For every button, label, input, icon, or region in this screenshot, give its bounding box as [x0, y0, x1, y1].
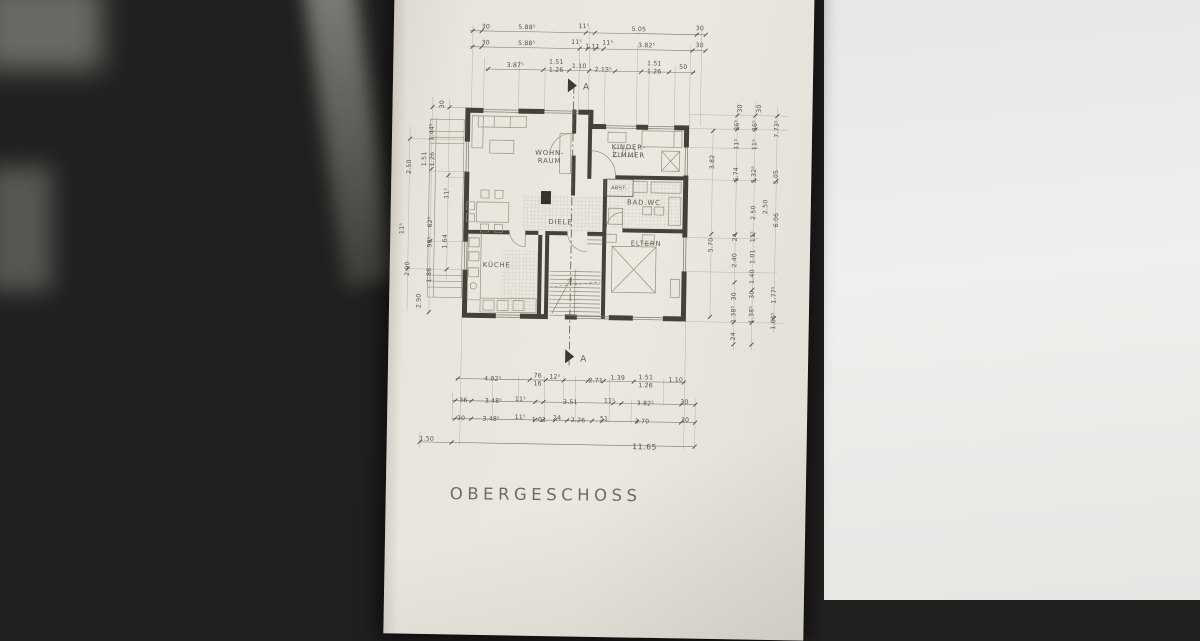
- dimension-label: 11⁵: [515, 396, 526, 403]
- dimension-label: 3.87⁵: [507, 62, 524, 69]
- section-arrow-top: [568, 78, 577, 92]
- dimension-label: 3.70: [635, 418, 650, 425]
- dimension-label: 30: [749, 290, 756, 298]
- dimension-label: 30: [680, 399, 688, 406]
- dimension-label: 1.66⁵: [770, 312, 777, 329]
- dimension-label: 1.39: [610, 375, 625, 382]
- dimension-label: 98⁵: [427, 236, 434, 247]
- dimension-label: 1.86: [426, 268, 433, 283]
- dimension-label: 1.10: [572, 63, 587, 70]
- room-label-wohnraum: WOHN-RAUM: [535, 149, 564, 166]
- dimension-label: 62⁵: [427, 217, 434, 228]
- dimension-label: 5.05: [632, 26, 647, 33]
- dimension-label: 2.71: [588, 377, 603, 384]
- dimension-label: 30: [756, 105, 763, 113]
- dimension-label: 11⁵: [750, 231, 757, 242]
- dimension-label: 1.11: [585, 43, 600, 50]
- dimension-label: 30: [695, 42, 703, 49]
- dimension-label: 1.38⁵: [748, 306, 755, 323]
- dimension-label: 51: [600, 416, 608, 423]
- dimension-label: 11⁵: [602, 40, 613, 47]
- dimension-label: 11⁵: [578, 23, 589, 30]
- section-letter-bottom: A: [580, 355, 587, 365]
- room-label-abstellraum: ABST.: [611, 185, 627, 191]
- dimension-label: 30: [737, 104, 744, 112]
- dimension-label: 30: [457, 415, 465, 422]
- dimension-label: 30: [731, 292, 738, 300]
- dimension-label: 1.40: [749, 269, 756, 284]
- dimension-label: 1.26: [638, 382, 653, 389]
- table-light-patch-left: [0, 166, 52, 291]
- dimension-label: 2.90: [415, 294, 422, 309]
- dimension-label: 24: [553, 415, 561, 422]
- dimension-label: 11⁵: [399, 223, 406, 234]
- dimension-label: 36⁵: [734, 120, 741, 131]
- dimension-label: 1.26: [429, 152, 436, 167]
- dimension-label: 1.77⁵: [771, 286, 778, 303]
- dimension-label: 11⁵: [571, 39, 582, 46]
- dimension-label: 1.26: [647, 68, 662, 75]
- dimension-label: 2.40: [731, 253, 738, 268]
- dimension-label: 3.48⁵: [482, 415, 499, 422]
- dimension-label: 5.88⁵: [518, 24, 535, 31]
- dimension-label: 30: [481, 39, 489, 46]
- dimension-label: 11⁵: [604, 398, 615, 405]
- dimension-label: 11⁵: [515, 414, 526, 421]
- dimension-label: 50: [679, 64, 687, 71]
- dimension-label: 1.01: [749, 249, 756, 264]
- kitchen-sink: [470, 283, 477, 290]
- dimension-label: 30: [696, 25, 704, 32]
- dimension-label: 1.64: [442, 234, 449, 249]
- drawing-title: OBERGESCHOSS: [450, 484, 642, 505]
- dimension-label: 1.51: [647, 60, 662, 67]
- dimension-label: 4.02⁵: [484, 376, 501, 383]
- section-letter-top: A: [583, 83, 590, 93]
- dimension-label: 1.50: [419, 435, 434, 442]
- dimension-label: 2.50: [750, 205, 757, 220]
- photo-of-floor-plan: { "page_title": "OBERGESCHOSS", "section…: [0, 0, 1200, 600]
- dimension-label: 30: [681, 417, 689, 424]
- section-arrow-bottom: [565, 349, 574, 363]
- dimension-label: 5.05: [773, 170, 780, 185]
- dimension-chain-lines: [420, 30, 706, 447]
- dimension-label: 3.48⁵: [485, 398, 502, 405]
- stairs: [549, 235, 602, 318]
- dimension-label: 36: [459, 397, 467, 404]
- dimension-label: 1.10: [668, 377, 683, 384]
- dimension-label: 1.51: [638, 374, 653, 381]
- dimension-label: 2.90: [404, 261, 411, 276]
- room-label-diele: DIELE: [548, 218, 572, 227]
- dimension-label: 2.26: [571, 417, 586, 424]
- chimney: [541, 191, 551, 204]
- adjacent-white-surface: [824, 0, 1200, 600]
- dimension-label: 30: [482, 23, 490, 30]
- dimension-label: 1.51: [421, 152, 428, 167]
- dimension-label: 3.51: [563, 399, 578, 406]
- dimension-label: 11⁵: [751, 139, 758, 150]
- table-light-patch: [0, 0, 102, 70]
- room-label-kinderzimmer: KINDER-ZIMMER: [611, 143, 646, 160]
- table-light-streak: [299, 0, 396, 287]
- dimension-label: 3.82: [709, 155, 716, 170]
- dimension-label: 11.65: [632, 442, 657, 451]
- dimension-label: 36⁵: [752, 120, 759, 131]
- dimension-label: 3.82⁵: [638, 42, 655, 49]
- dimension-label: 24: [732, 233, 739, 241]
- dimension-label: 30: [439, 100, 446, 108]
- room-label-bad-wc: BAD.WC: [627, 198, 661, 207]
- room-label-eltern: ELTERN: [631, 239, 662, 248]
- dimension-label: 1.44⁵: [428, 123, 435, 140]
- dimension-label: 1.01: [532, 416, 547, 423]
- dimension-label: 76: [534, 372, 542, 379]
- dimension-label: 2.50: [762, 200, 769, 215]
- dimension-label: 2.13⁵: [594, 66, 611, 73]
- dimension-label: 11⁵: [733, 139, 740, 150]
- dimension-label: 6.06: [773, 213, 780, 228]
- dimension-label: 5.88⁵: [518, 40, 535, 47]
- dimension-label: 2.50: [406, 159, 413, 174]
- dimension-label: 16: [533, 380, 541, 387]
- dimension-label: 24: [730, 332, 737, 340]
- paper-sheet: A A 305.88⁵11⁵5.0530305.88⁵11⁵1.1111⁵3.8…: [383, 0, 814, 641]
- dimension-label: 11⁵: [443, 188, 450, 199]
- dimension-label: 12⁵: [549, 374, 560, 381]
- dimension-label: 1.26: [549, 67, 564, 74]
- dimension-label: 3.32⁵: [751, 166, 758, 183]
- dimension-ticks: [403, 28, 781, 450]
- dimension-label: 5.70: [708, 238, 715, 253]
- dimension-label: 3.82⁵: [637, 400, 654, 407]
- dimension-label: 6.74: [733, 167, 740, 182]
- dimension-label: 1.38⁵: [730, 306, 737, 323]
- dimension-label: 7.73⁵: [774, 120, 781, 137]
- dimension-label: 1.51: [549, 59, 564, 66]
- room-label-kueche: KÜCHE: [483, 261, 511, 270]
